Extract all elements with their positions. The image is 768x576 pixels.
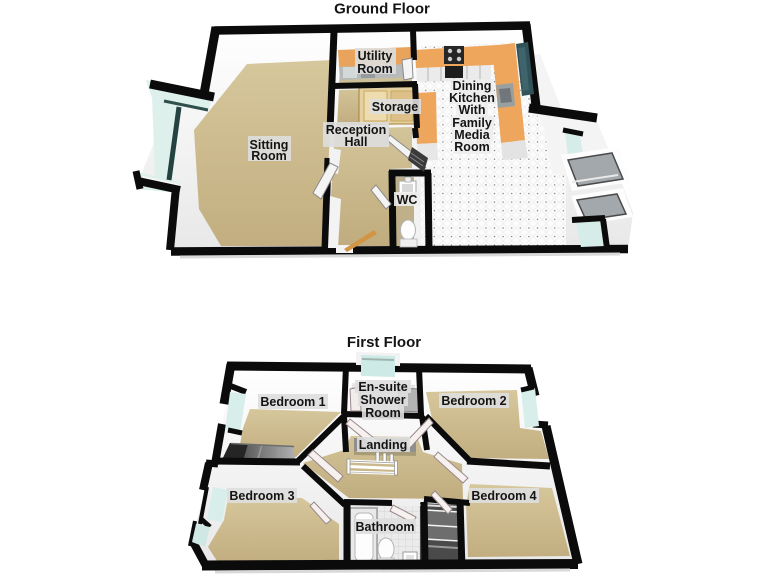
svg-text:Room: Room xyxy=(357,62,392,76)
svg-text:Shower: Shower xyxy=(360,393,405,407)
svg-text:Landing: Landing xyxy=(359,438,408,452)
svg-text:Bedroom 1: Bedroom 1 xyxy=(260,395,325,409)
svg-text:Bathroom: Bathroom xyxy=(355,520,414,534)
svg-text:WC: WC xyxy=(397,193,418,207)
svg-text:Utility: Utility xyxy=(358,49,393,63)
svg-text:First Floor: First Floor xyxy=(347,334,421,351)
svg-text:With: With xyxy=(459,103,486,117)
svg-text:Room: Room xyxy=(365,406,400,420)
svg-text:Room: Room xyxy=(251,149,286,163)
svg-text:Room: Room xyxy=(454,140,489,154)
svg-text:En-suite: En-suite xyxy=(358,380,407,394)
svg-text:Bedroom 3: Bedroom 3 xyxy=(229,489,294,503)
svg-text:Storage: Storage xyxy=(372,100,419,114)
svg-text:Bedroom 4: Bedroom 4 xyxy=(471,489,536,503)
svg-text:Bedroom 2: Bedroom 2 xyxy=(441,394,506,408)
svg-text:Ground Floor: Ground Floor xyxy=(334,1,430,18)
svg-text:Hall: Hall xyxy=(345,135,368,149)
